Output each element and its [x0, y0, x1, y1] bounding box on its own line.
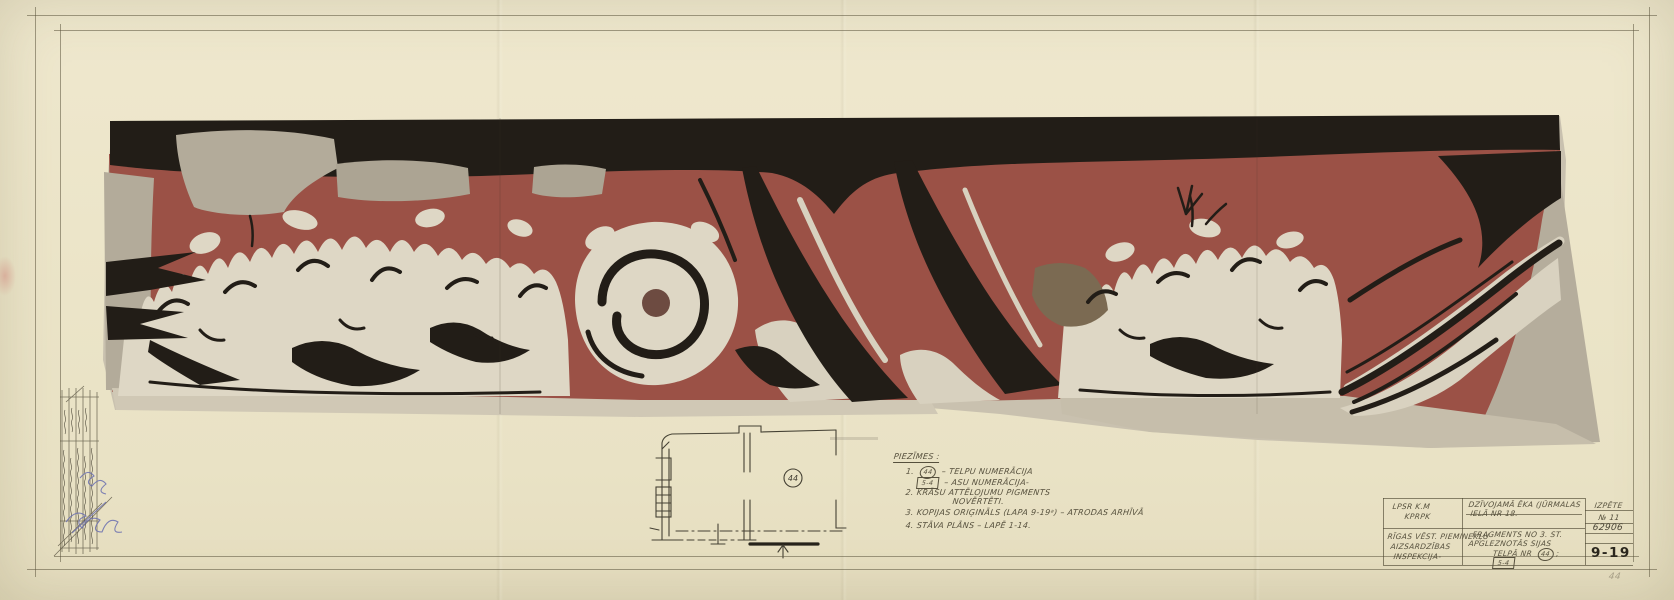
drawing-subject: FRAGMENTS NO 3. ST.: [1472, 530, 1563, 539]
drawing-sheet: 44: [0, 0, 1674, 600]
room-number-symbol: 44: [1537, 548, 1555, 561]
legend-item-2-cont: NOVĒRTĒTI.: [952, 497, 1005, 506]
stamp-number: № 11: [1598, 513, 1620, 522]
inventory-number: 62906: [1592, 523, 1624, 533]
legend-item-2: 2. KRĀSU ATTĒLOJUMU PIGMENTS: [905, 488, 1051, 497]
axis-reference: 5-4: [1492, 557, 1515, 569]
sheet-number: 9-19: [1591, 545, 1631, 561]
stamp-type: IZPĒTE: [1594, 501, 1623, 510]
legend-item-4: 4. STĀVA PLĀNS – LAPĒ 1-14.: [905, 521, 1032, 530]
blue-ink-scribble: [66, 472, 122, 533]
legend-heading: PIEZĪMES :: [893, 452, 940, 463]
org-name-top: LPSR K.M: [1392, 502, 1431, 511]
project-title: DZĪVOJAMĀ ĒKA (JŪRMALAS: [1468, 500, 1581, 509]
legend-item-3: 3. KOPIJAS ORIĢINĀLS (LAPA 9-19ᵃ) – ATRO…: [905, 508, 1144, 517]
corner-page-number: 44: [1608, 572, 1621, 582]
